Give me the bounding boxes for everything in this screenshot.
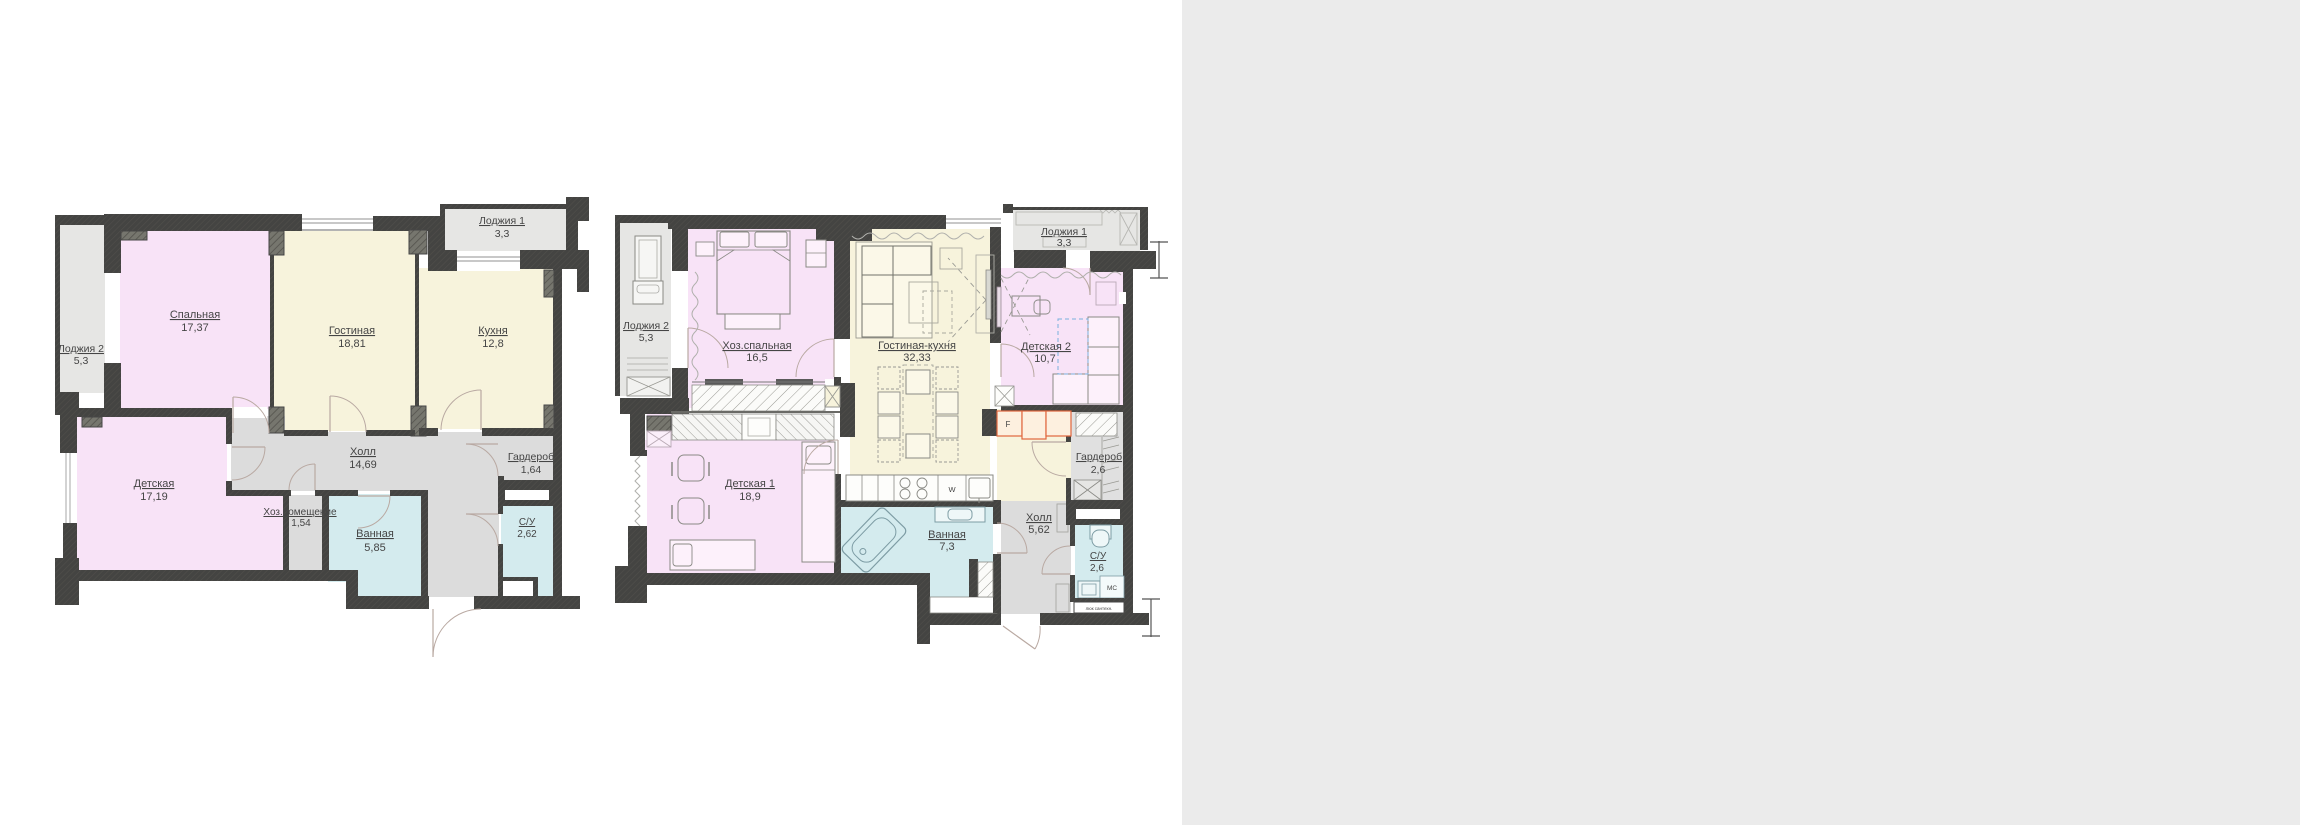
svg-text:С/У: С/У <box>1090 551 1107 562</box>
svg-text:1,64: 1,64 <box>521 464 542 476</box>
svg-text:W: W <box>948 485 956 494</box>
svg-text:Ванная: Ванная <box>928 529 966 541</box>
svg-text:17,19: 17,19 <box>140 491 168 503</box>
svg-text:2,62: 2,62 <box>517 529 537 540</box>
svg-text:Детская 1: Детская 1 <box>725 478 775 490</box>
svg-text:Холл: Холл <box>1026 512 1052 524</box>
svg-text:Холл: Холл <box>350 446 376 458</box>
svg-text:1,54: 1,54 <box>291 518 311 529</box>
svg-text:Лоджия 2: Лоджия 2 <box>623 320 669 332</box>
svg-text:Лоджия 1: Лоджия 1 <box>479 215 525 227</box>
svg-text:3,3: 3,3 <box>495 228 510 240</box>
svg-text:14,69: 14,69 <box>349 459 377 471</box>
svg-text:18,9: 18,9 <box>739 491 760 503</box>
svg-text:16,5: 16,5 <box>746 352 767 364</box>
svg-text:2,6: 2,6 <box>1091 464 1106 476</box>
svg-text:Спальная: Спальная <box>170 309 220 321</box>
svg-text:Хоз.спальная: Хоз.спальная <box>722 340 791 352</box>
svg-text:5,62: 5,62 <box>1028 524 1049 536</box>
svg-text:5,3: 5,3 <box>74 355 89 367</box>
svg-text:32,33: 32,33 <box>903 352 931 364</box>
svg-text:Гостиная: Гостиная <box>329 325 375 337</box>
svg-text:10,7: 10,7 <box>1034 353 1055 365</box>
svg-text:5,85: 5,85 <box>364 542 385 554</box>
svg-text:Детская 2: Детская 2 <box>1021 341 1071 353</box>
svg-text:2,6: 2,6 <box>1090 563 1104 574</box>
svg-text:18,81: 18,81 <box>338 338 366 350</box>
svg-text:Хоз.помещение: Хоз.помещение <box>263 507 337 518</box>
svg-text:Гостиная-кухня: Гостиная-кухня <box>878 340 956 352</box>
svg-text:Гардероб: Гардероб <box>1076 451 1122 463</box>
svg-text:12,8: 12,8 <box>482 338 503 350</box>
svg-text:Кухня: Кухня <box>478 325 507 337</box>
svg-text:Детская: Детская <box>134 478 175 490</box>
svg-text:5,3: 5,3 <box>639 332 654 344</box>
svg-text:МС: МС <box>1107 585 1117 592</box>
svg-text:3,3: 3,3 <box>1057 237 1072 249</box>
svg-text:7,3: 7,3 <box>939 541 954 553</box>
svg-text:F: F <box>1006 420 1011 429</box>
svg-text:С/У: С/У <box>519 517 536 528</box>
svg-text:Гардероб: Гардероб <box>508 451 554 463</box>
svg-text:17,37: 17,37 <box>181 322 209 334</box>
svg-text:люк сантехн.: люк сантехн. <box>1086 606 1113 611</box>
svg-text:Ванная: Ванная <box>356 528 394 540</box>
svg-text:Лоджия 2: Лоджия 2 <box>58 343 104 355</box>
